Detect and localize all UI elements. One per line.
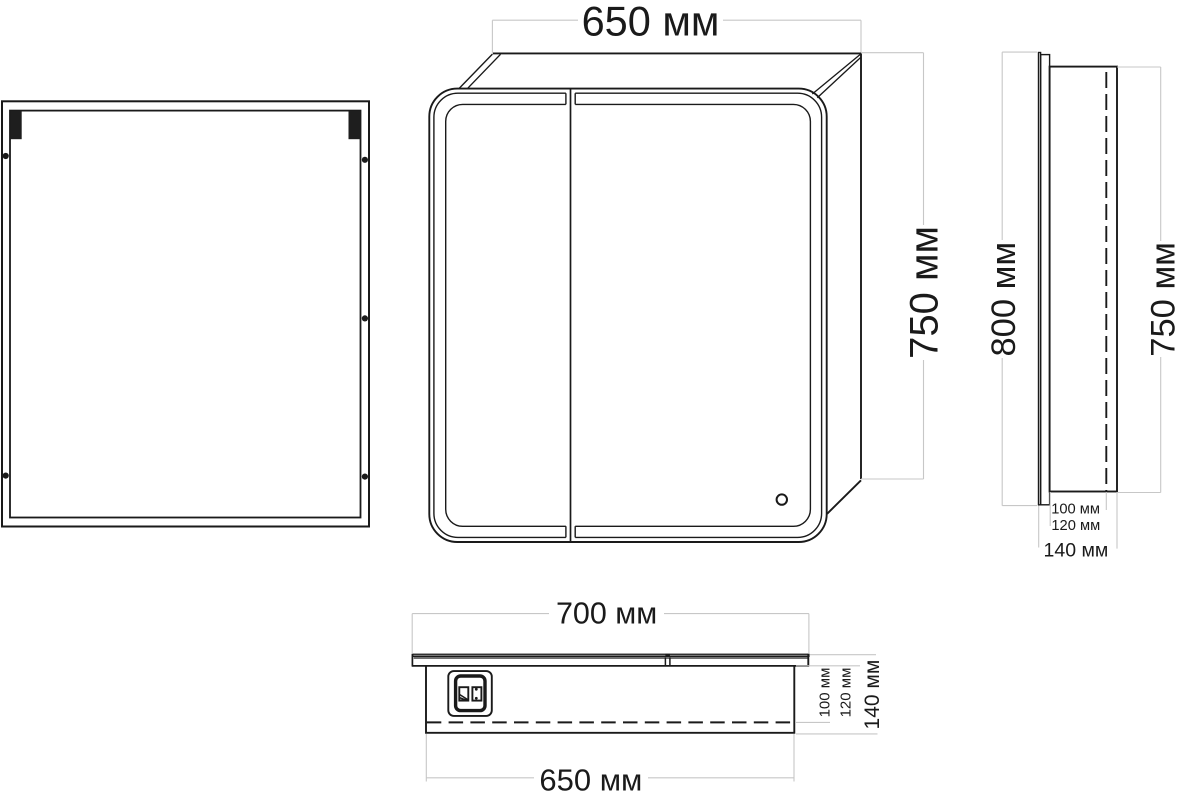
svg-text:100 мм: 100 мм	[817, 668, 834, 718]
svg-text:100 мм: 100 мм	[1051, 502, 1100, 518]
svg-text:750 мм: 750 мм	[902, 226, 946, 359]
svg-text:750 мм: 750 мм	[1145, 242, 1183, 357]
svg-text:650 мм: 650 мм	[582, 0, 720, 44]
svg-text:800 мм: 800 мм	[985, 242, 1023, 357]
svg-text:700 мм: 700 мм	[556, 597, 657, 631]
svg-text:140 мм: 140 мм	[861, 660, 884, 730]
svg-text:120 мм: 120 мм	[1051, 518, 1100, 534]
svg-text:140 мм: 140 мм	[1044, 539, 1109, 561]
svg-text:120 мм: 120 мм	[837, 668, 854, 718]
svg-text:650 мм: 650 мм	[539, 763, 642, 798]
